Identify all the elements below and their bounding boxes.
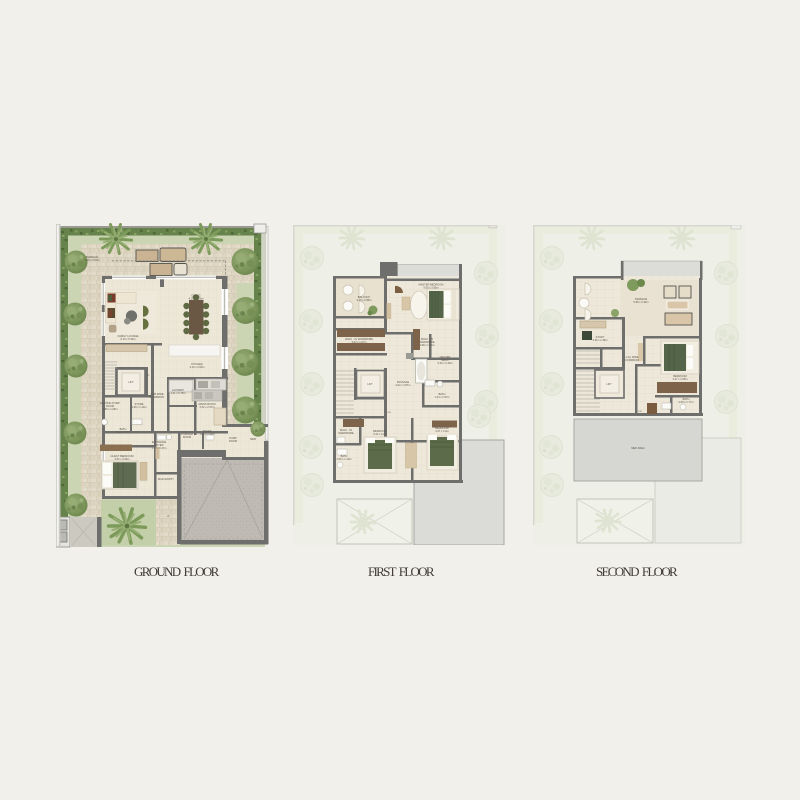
svg-text:LIFT: LIFT <box>128 380 134 384</box>
svg-text:2.52 x 2.07m: 2.52 x 2.07m <box>200 405 215 409</box>
svg-text:3.77 x 3.47m: 3.77 x 3.47m <box>152 446 167 450</box>
svg-text:5.98 x 4.33m: 5.98 x 4.33m <box>634 300 649 304</box>
svg-text:3.47 x 3.05m: 3.47 x 3.05m <box>673 377 688 381</box>
svg-text:3.36 x 2.36m: 3.36 x 2.36m <box>593 338 608 342</box>
svg-text:MEP AREA: MEP AREA <box>631 446 644 450</box>
svg-text:MDB: MDB <box>250 437 256 441</box>
svg-text:1.98 x 1.20m: 1.98 x 1.20m <box>132 405 147 409</box>
svg-text:1.34 x 2.57m: 1.34 x 2.57m <box>435 395 450 399</box>
svg-text:MAIN ENTRY: MAIN ENTRY <box>158 477 174 481</box>
svg-text:4.10 x 4.50m: 4.10 x 4.50m <box>189 297 204 301</box>
svg-text:1.80 x 1.05m: 1.80 x 1.05m <box>103 407 118 411</box>
svg-text:1.98 x 1.72m: 1.98 x 1.72m <box>420 343 435 347</box>
svg-text:3.37 x 3.4m: 3.37 x 3.4m <box>435 429 449 433</box>
svg-text:5.65 x 3.95m: 5.65 x 3.95m <box>424 286 439 290</box>
svg-text:3.46 x 2.86m: 3.46 x 2.86m <box>357 298 372 302</box>
svg-text:1.41 x 0.75m: 1.41 x 0.75m <box>171 391 186 395</box>
svg-text:UP: UP <box>146 375 150 377</box>
svg-text:DN: DN <box>638 411 642 413</box>
svg-text:3.62 x 1.67m: 3.62 x 1.67m <box>352 340 367 344</box>
svg-text:CORRIDOR: CORRIDOR <box>625 358 639 362</box>
svg-text:2.02 x 4.57m: 2.02 x 4.57m <box>396 383 411 387</box>
svg-text:3.41 x 4.2m: 3.41 x 4.2m <box>373 432 387 436</box>
svg-text:2.09 x 1.10m: 2.09 x 1.10m <box>337 457 352 461</box>
svg-text:4.10 x 3.00m: 4.10 x 3.00m <box>190 365 205 369</box>
svg-text:3.40 x 4.40m: 3.40 x 4.40m <box>438 361 453 365</box>
svg-text:WARDROBE: WARDROBE <box>338 431 353 435</box>
svg-text:LIFT: LIFT <box>367 382 373 386</box>
svg-text:2.52 x 1.57m: 2.52 x 1.57m <box>116 430 131 434</box>
svg-text:CORRIDOR: CORRIDOR <box>150 395 164 399</box>
svg-text:1.05 x 2.40m: 1.05 x 2.40m <box>200 432 215 436</box>
svg-text:LIFT: LIFT <box>606 382 612 386</box>
svg-text:9.66 x 2.50m: 9.66 x 2.50m <box>85 258 100 262</box>
svg-text:2.65 x 1.77m: 2.65 x 1.77m <box>679 400 694 404</box>
svg-text:UP: UP <box>166 516 170 518</box>
svg-text:DN: DN <box>387 412 391 414</box>
svg-text:ROOM: ROOM <box>183 435 191 439</box>
svg-text:6.10 x 5.30m: 6.10 x 5.30m <box>121 337 136 341</box>
svg-text:3.52 x 3.06m: 3.52 x 3.06m <box>115 457 130 461</box>
svg-text:ROOM: ROOM <box>229 439 237 443</box>
